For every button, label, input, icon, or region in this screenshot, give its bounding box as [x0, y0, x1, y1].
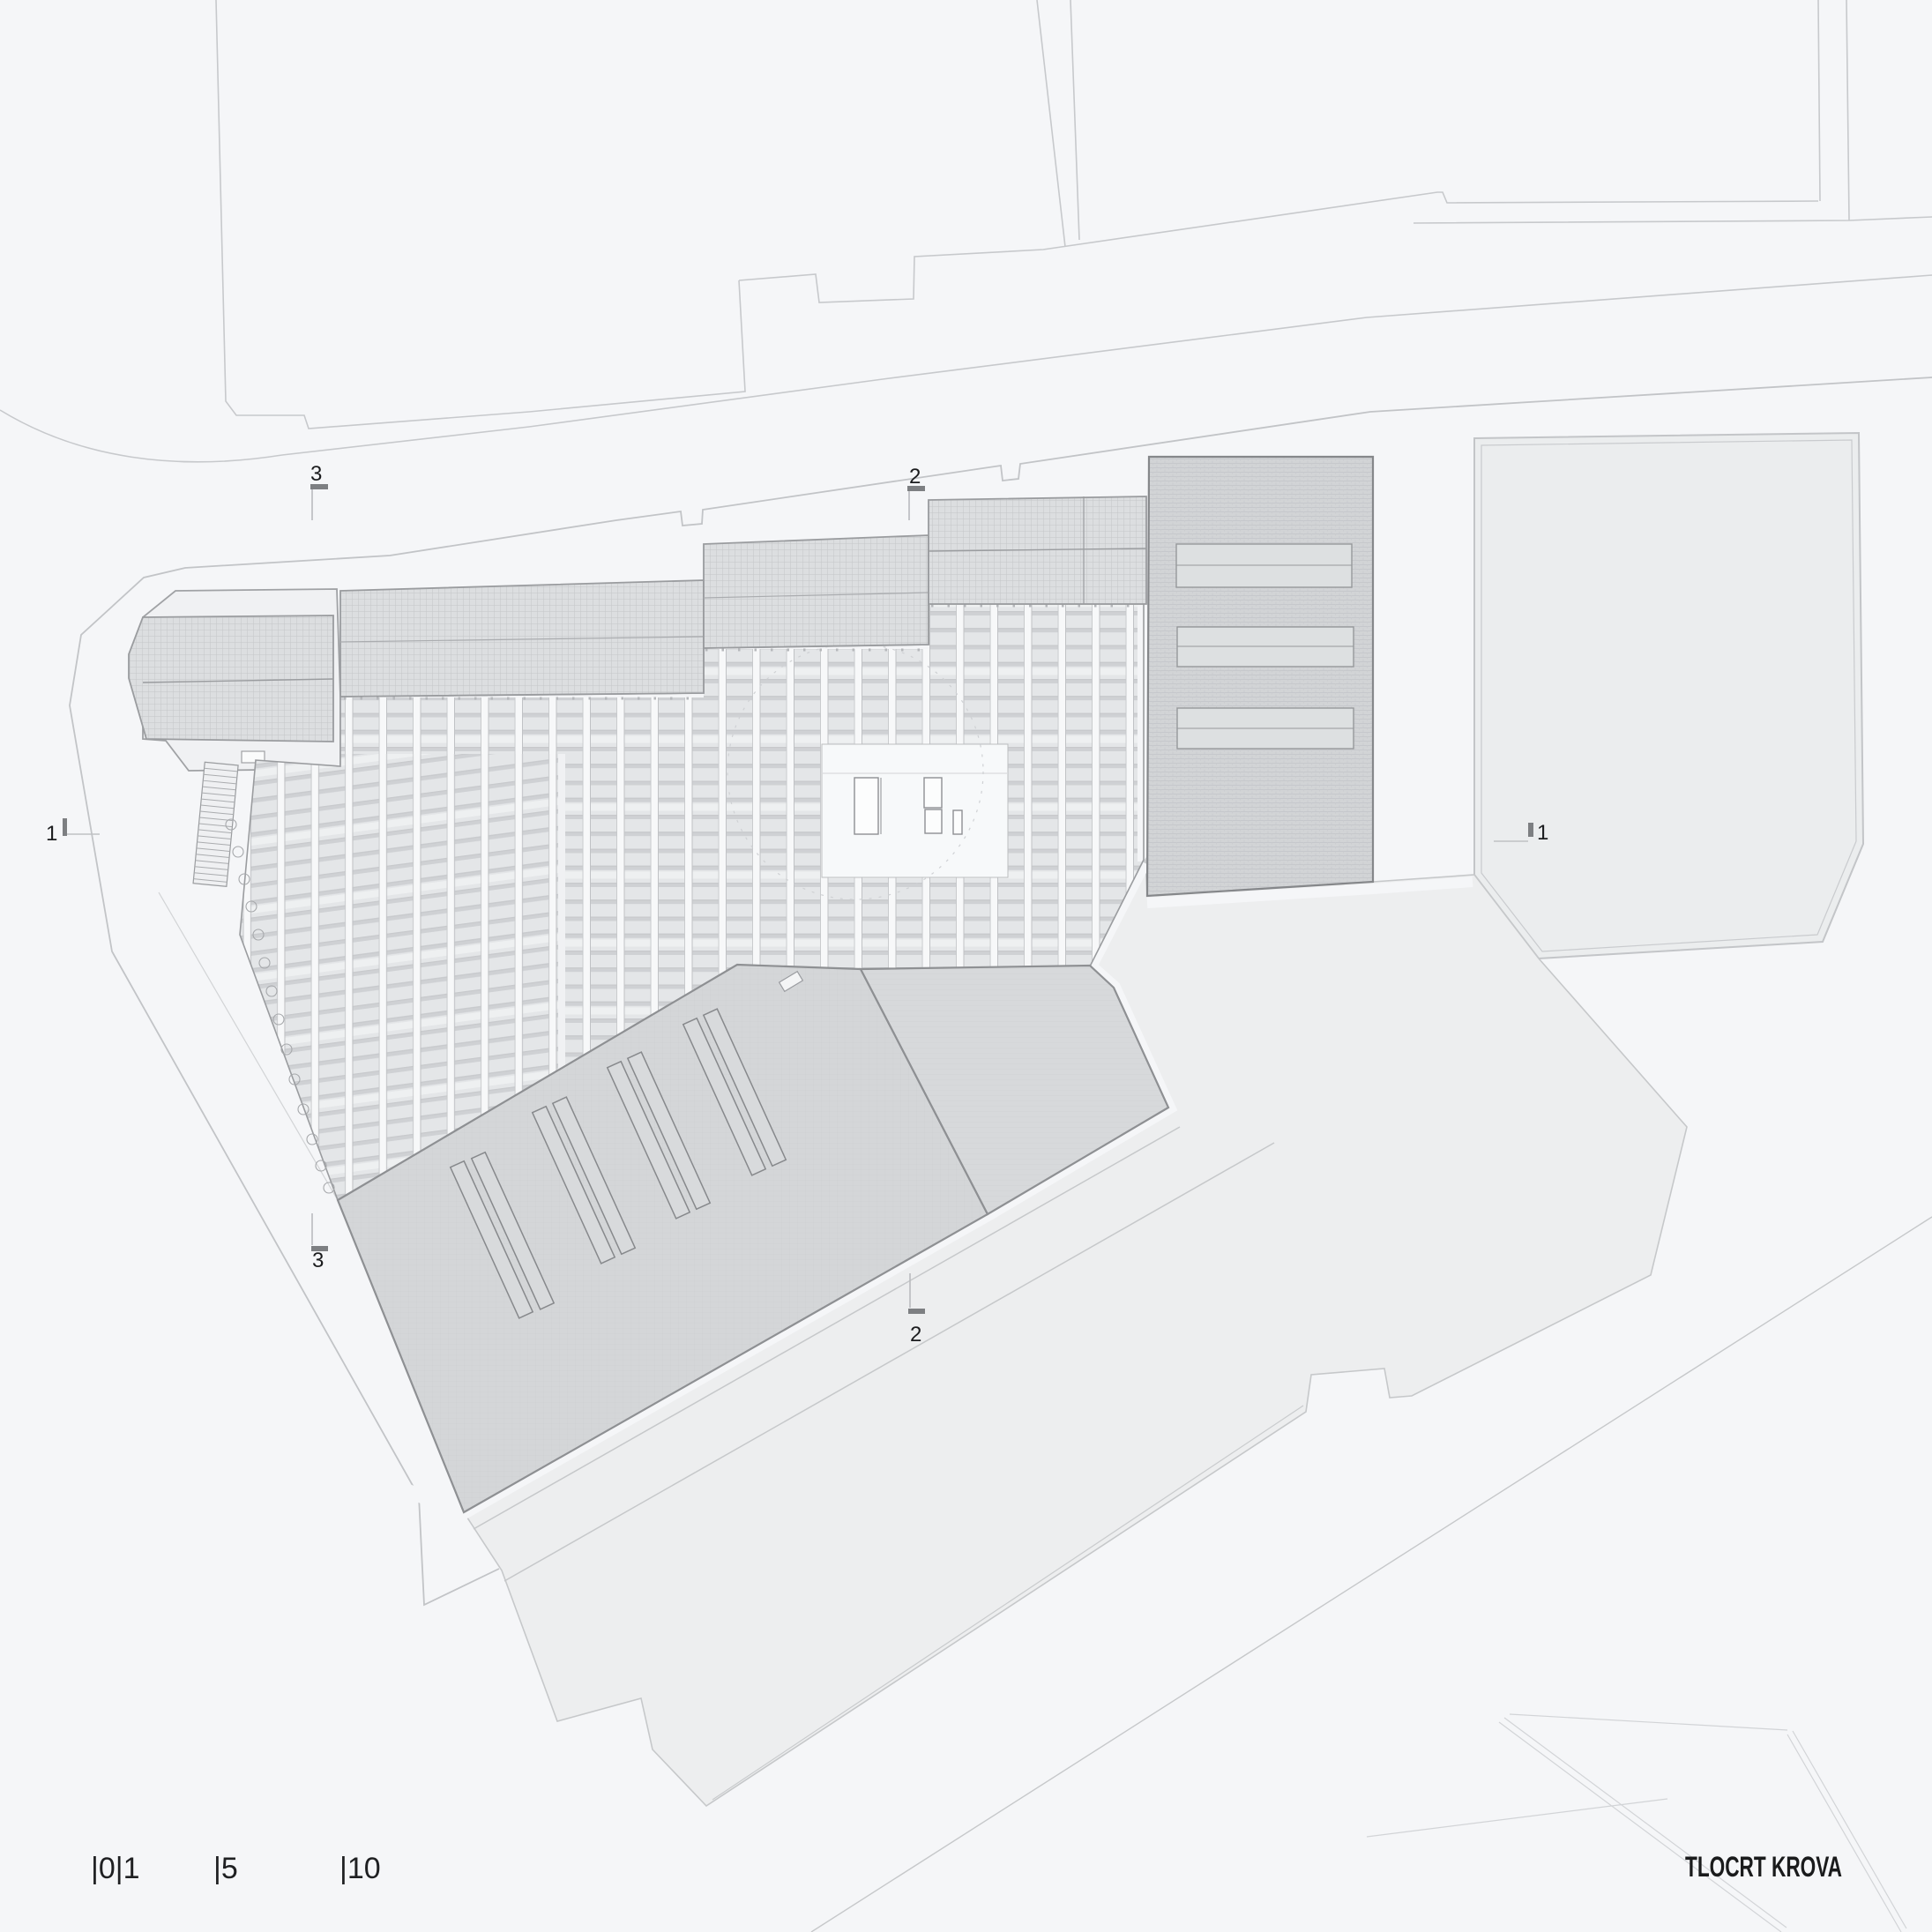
svg-text:|0|1: |0|1	[91, 1852, 139, 1885]
svg-text:2: 2	[909, 465, 921, 489]
svg-text:|5: |5	[213, 1852, 238, 1885]
svg-text:3: 3	[312, 1249, 324, 1272]
svg-text:|10: |10	[339, 1852, 381, 1885]
svg-text:1: 1	[46, 822, 57, 846]
svg-text:1: 1	[1537, 821, 1548, 845]
svg-text:2: 2	[910, 1323, 921, 1346]
svg-text:3: 3	[310, 462, 322, 486]
svg-text:TLOCRT KROVA: TLOCRT KROVA	[1685, 1851, 1842, 1883]
